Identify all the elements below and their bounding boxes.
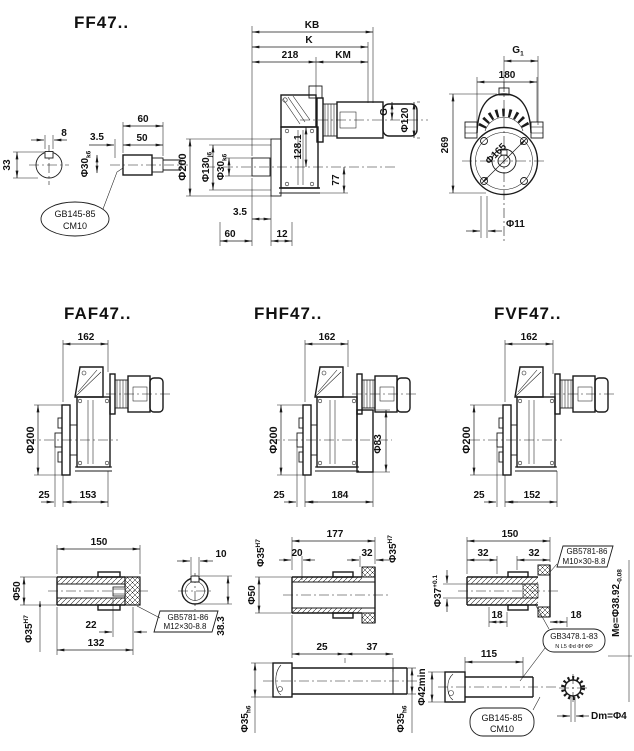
dim-180: 180 [499, 70, 516, 81]
sp-dim-18b: 18 [570, 610, 582, 621]
faf-dim-phi200: Φ200 [25, 426, 37, 453]
fhf-dim-25: 25 [273, 490, 285, 501]
fvf-dim-162: 162 [521, 332, 538, 343]
hs-dim-22: 22 [85, 620, 97, 631]
dim-77: 77 [331, 174, 342, 186]
dim-phi120: Φ120 [400, 107, 411, 132]
sp-bolt-size: M10×30-8.8 [563, 557, 606, 566]
fvf-dim-25: 25 [473, 490, 485, 501]
hs-dim-38-3: 38.3 [216, 616, 227, 636]
sp-dim-18a: 18 [491, 610, 503, 621]
fvf-dim-152: 152 [524, 490, 541, 501]
faf-dim-25: 25 [38, 490, 50, 501]
ss-dim-20: 20 [291, 548, 303, 559]
dim-8: 8 [61, 128, 67, 139]
dim-3-5-side: 3.5 [233, 207, 247, 218]
hs-dim-132: 132 [88, 638, 105, 649]
sp-spline-std: GB3478.1-83 [550, 632, 598, 641]
dim-33: 33 [2, 159, 13, 171]
hs-dim-150: 150 [91, 537, 108, 548]
dim-218: 218 [282, 50, 299, 61]
fhf-dim-162: 162 [319, 332, 336, 343]
ss-dim-25: 25 [316, 642, 328, 653]
dim-kb: KB [305, 20, 319, 31]
sp-cm10: CM10 [490, 724, 514, 734]
sp-spline-spec: N L5 Φd Φf ΦP [555, 644, 593, 650]
dim-g: G [379, 108, 390, 116]
ss-dim-37: 37 [366, 642, 378, 653]
sp-dim-115: 115 [481, 649, 498, 660]
ff47-title: FF47.. [74, 13, 129, 32]
dim-60-side: 60 [224, 229, 236, 240]
sp-gb145: GB145-85 [481, 713, 522, 723]
fhf-dim-184: 184 [332, 490, 349, 501]
gearbox-dimension-drawing: FF47.. 8 33 60 3.5 50 Φ30k6 GB145-85 [0, 0, 634, 751]
sp-dim-32b: 32 [528, 548, 540, 559]
sp-bolt-std: GB5781-86 [567, 547, 608, 556]
technical-drawing-canvas: FF47.. 8 33 60 3.5 50 Φ30k6 GB145-85 [0, 0, 634, 751]
ss-dim-177: 177 [327, 529, 344, 540]
fvf-dim-phi200: Φ200 [461, 426, 473, 453]
spline-bore [523, 584, 538, 598]
hs-dim-10: 10 [215, 549, 227, 560]
fhf-dim-phi83: Φ83 [373, 434, 384, 454]
dim-k: K [305, 35, 313, 46]
sp-dim-150: 150 [502, 529, 519, 540]
dim-60: 60 [137, 114, 149, 125]
hs-bolt-size: M12×30-8.8 [164, 622, 207, 631]
dim-12: 12 [276, 229, 288, 240]
dim-phi11: Φ11 [506, 219, 525, 230]
ss-dim-phi42min: Φ42min [417, 668, 428, 705]
faf-dim-153: 153 [80, 490, 97, 501]
hs-bolt-std: GB5781-86 [168, 613, 209, 622]
sp-dim-dm: Dm=Φ4 [591, 711, 627, 722]
dim-phi200: Φ200 [177, 153, 189, 180]
faf-dim-162: 162 [78, 332, 95, 343]
fvf47-title: FVF47.. [494, 304, 561, 323]
faf47-title: FAF47.. [64, 304, 131, 323]
fhf47-title: FHF47.. [254, 304, 322, 323]
keyway-slot [45, 152, 53, 159]
dim-128-1: 128.1 [293, 134, 304, 159]
callout-gb145: GB145-85 [54, 209, 95, 219]
dim-50: 50 [136, 133, 148, 144]
ss-dim-phi50: Φ50 [247, 585, 258, 605]
dim-269: 269 [440, 136, 451, 153]
bore-keyway [191, 576, 199, 582]
dim-3-5: 3.5 [90, 132, 104, 143]
callout-cm10: CM10 [63, 221, 87, 231]
dim-km: KM [335, 50, 351, 61]
fhf-dim-phi200: Φ200 [268, 426, 280, 453]
ss-dim-32: 32 [361, 548, 373, 559]
sp-dim-32a: 32 [477, 548, 489, 559]
end-cap [125, 577, 140, 605]
hs-dim-phi50: Φ50 [12, 581, 23, 601]
